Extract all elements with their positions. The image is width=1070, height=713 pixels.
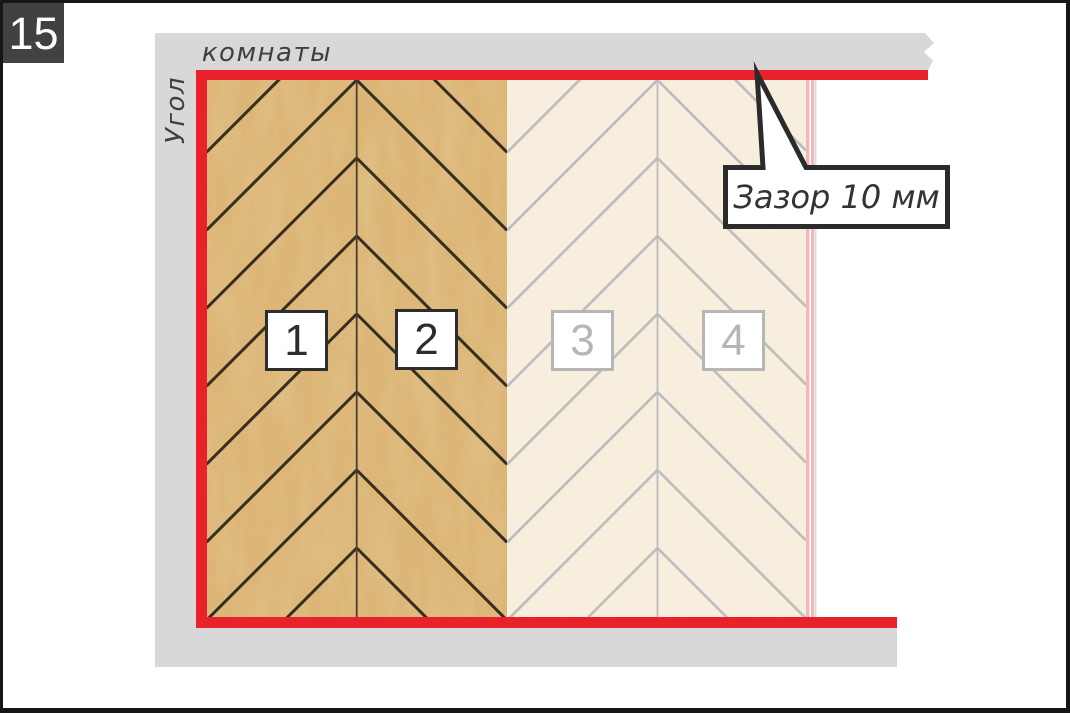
- step-number-badge: 15: [3, 3, 64, 63]
- gap-line-bottom: [196, 617, 897, 628]
- wall-label-horizontal: комнаты: [192, 38, 342, 68]
- panel-label-1: 1: [265, 310, 328, 371]
- gap-callout-text: Зазор 10 мм: [725, 167, 948, 227]
- underlay-edge-strip: [806, 80, 817, 618]
- flooring-step-diagram: 15 Угол комнаты 1 2 3 4 Зазор 10 мм: [0, 0, 1070, 713]
- panel-label-3: 3: [551, 310, 614, 371]
- panel-label-2: 2: [395, 309, 458, 370]
- panel-label-4: 4: [702, 310, 765, 371]
- wall-bottom-band: [155, 628, 897, 667]
- gap-line-left: [196, 70, 207, 628]
- wall-label-vertical: Угол: [161, 70, 191, 150]
- gap-line-top: [196, 70, 928, 80]
- step-number: 15: [8, 11, 58, 56]
